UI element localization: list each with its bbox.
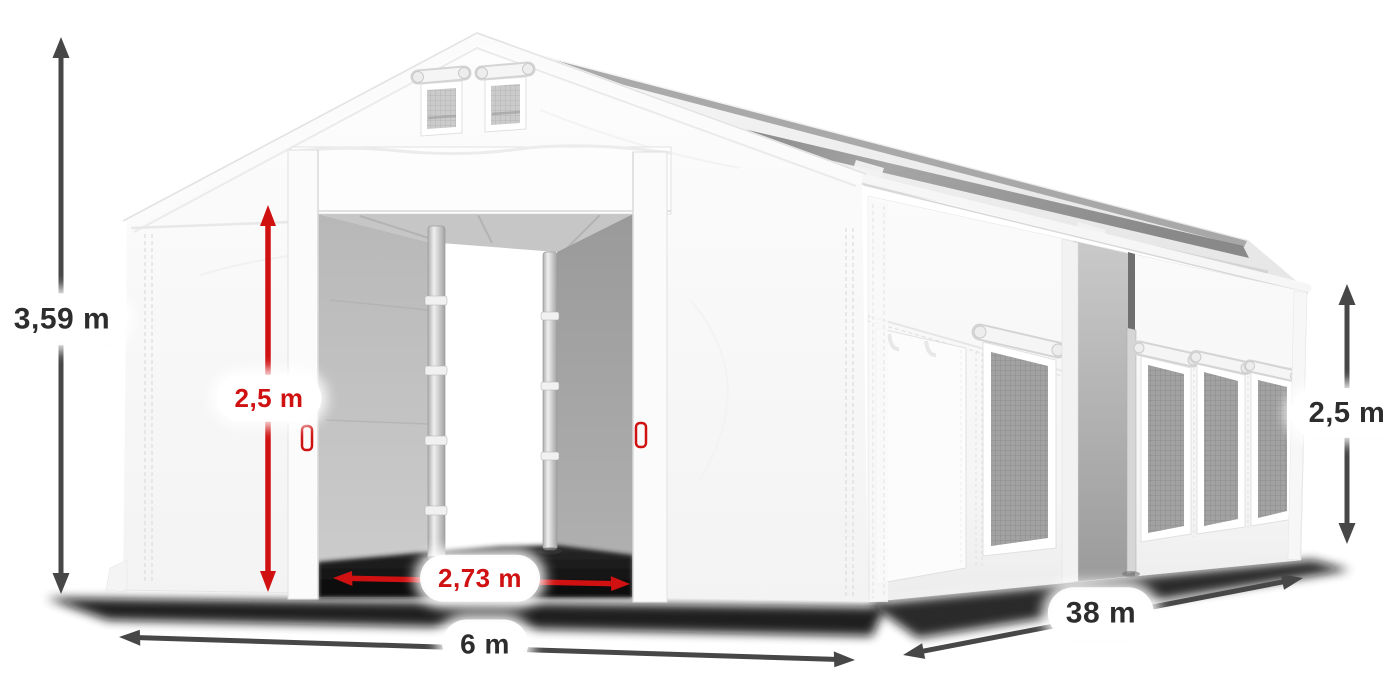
side-window-3 bbox=[1191, 352, 1251, 534]
side-window-2 bbox=[1134, 343, 1198, 542]
sliding-door-left bbox=[288, 150, 318, 599]
product-illustration-stage: 3,59 m 2,5 m 2,73 m 6 m 38 m 2,5 m bbox=[0, 0, 1400, 700]
dimension-label-length: 38 m bbox=[1051, 590, 1151, 636]
dimension-label-side-height: 2,5 m bbox=[1294, 391, 1400, 435]
open-side-section bbox=[1062, 239, 1140, 583]
sliding-door-right bbox=[633, 152, 667, 602]
gable-vent-left bbox=[413, 68, 470, 137]
side-door-panel bbox=[876, 328, 966, 584]
tent-illustration bbox=[0, 0, 1400, 700]
door-opening-interior bbox=[318, 214, 633, 598]
dimension-label-total-width: 6 m bbox=[445, 623, 525, 666]
dimension-label-door-height: 2,5 m bbox=[220, 378, 319, 419]
door-header-beam bbox=[291, 146, 671, 214]
dimension-label-door-width: 2,73 m bbox=[423, 558, 537, 599]
dimension-label-total-height: 3,59 m bbox=[0, 296, 125, 342]
side-window-1 bbox=[974, 326, 1064, 556]
gable-vent-right bbox=[477, 64, 534, 133]
